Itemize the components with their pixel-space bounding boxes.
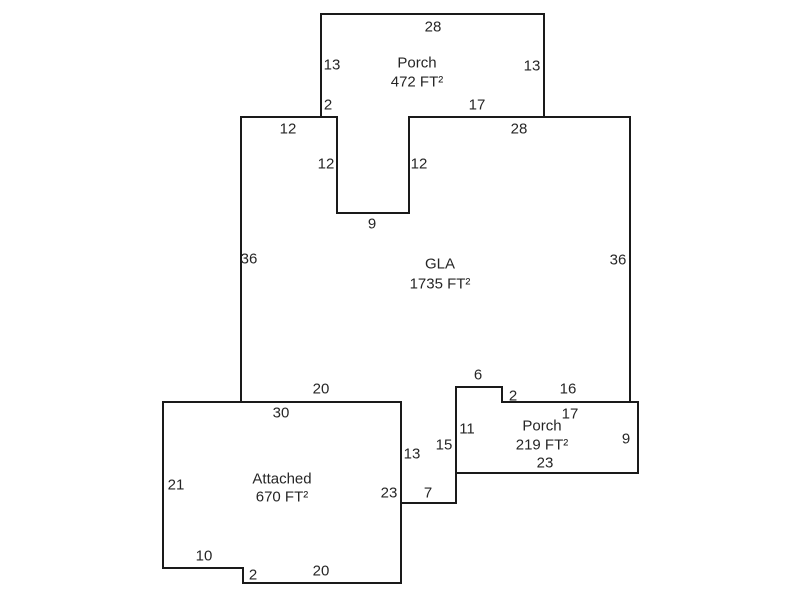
dim-label-porch1-bottom-right: 17 xyxy=(469,96,486,113)
dim-label-gla-bottom-right: 16 xyxy=(560,380,577,397)
dim-label-gla-left: 36 xyxy=(241,250,258,267)
dim-label-gla-step-top: 6 xyxy=(474,366,482,383)
dim-label-porch1-right: 13 xyxy=(524,57,541,74)
dim-label-notch-right: 12 xyxy=(411,155,428,172)
porch-top-label-line1: Porch xyxy=(397,54,436,71)
dim-label-gla-top-right: 28 xyxy=(511,120,528,137)
dim-label-attached-left: 21 xyxy=(168,476,185,493)
dim-label-porch2-left: 11 xyxy=(459,420,475,437)
dim-label-porch2-right: 9 xyxy=(622,430,630,447)
dim-label-gla-right: 36 xyxy=(610,251,627,268)
dim-label-attached-step: 2 xyxy=(249,566,257,583)
dim-label-notch-bottom: 9 xyxy=(368,215,376,232)
sketch-canvas: Porch472 FT²GLA1735 FT²Porch219 FT²Attac… xyxy=(0,0,800,600)
dim-label-porch1-left: 13 xyxy=(324,56,341,73)
dim-label-porch2-top: 17 xyxy=(562,405,579,422)
dim-label-gla-top-left: 12 xyxy=(280,120,297,137)
dim-label-gla-bottom-left: 20 xyxy=(313,380,330,397)
dim-label-notch-left: 12 xyxy=(318,155,335,172)
dim-label-attached-right: 23 xyxy=(381,484,398,501)
floor-plan-svg: Porch472 FT²GLA1735 FT²Porch219 FT²Attac… xyxy=(0,0,800,600)
dim-label-gla-strip-bottom: 7 xyxy=(424,484,432,501)
attached-garage-label-line2: 670 FT² xyxy=(256,488,309,505)
gla-label-line1: GLA xyxy=(425,255,455,272)
gla-label-line2: 1735 FT² xyxy=(410,275,471,292)
porch-bottom-right-label-line1: Porch xyxy=(522,417,561,434)
dim-label-attached-top: 30 xyxy=(273,404,290,421)
dim-label-attached-bottom: 20 xyxy=(313,562,330,579)
porch-bottom-right-label-line2: 219 FT² xyxy=(516,436,569,453)
dim-label-porch1-bottom-left: 2 xyxy=(324,96,332,113)
attached-garage-label-line1: Attached xyxy=(252,470,311,487)
dim-label-porch1-top: 28 xyxy=(425,18,442,35)
porch-top-label-line2: 472 FT² xyxy=(391,73,444,90)
dim-label-porch2-bottom: 23 xyxy=(537,454,554,471)
dim-label-porch2-step: 2 xyxy=(509,387,517,404)
dim-label-attached-bottom-step: 10 xyxy=(196,547,213,564)
dim-label-gla-strip-left: 15 xyxy=(436,436,453,453)
dim-label-gla-strip-right: 13 xyxy=(404,445,421,462)
